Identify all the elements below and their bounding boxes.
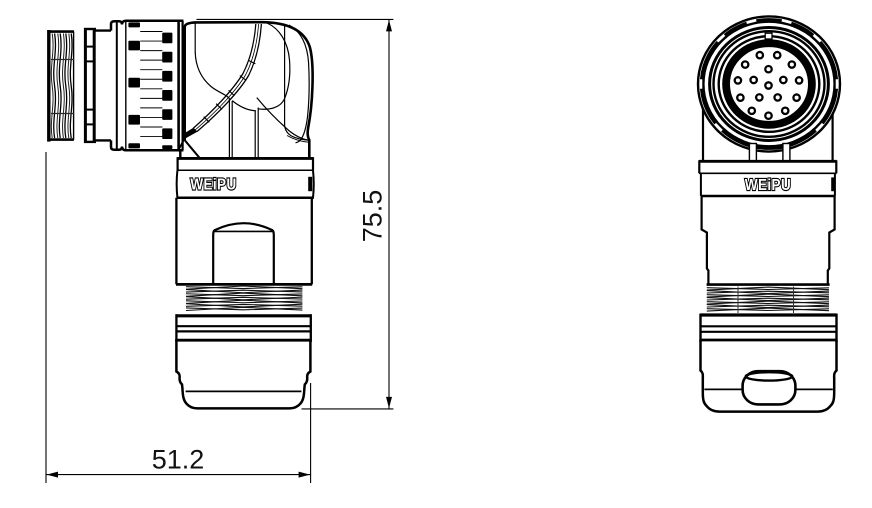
- svg-text:75.5: 75.5: [358, 190, 388, 243]
- svg-text:WEiPU: WEiPU: [190, 177, 236, 194]
- svg-text:WEiPU: WEiPU: [745, 177, 791, 194]
- svg-text:51.2: 51.2: [152, 445, 205, 475]
